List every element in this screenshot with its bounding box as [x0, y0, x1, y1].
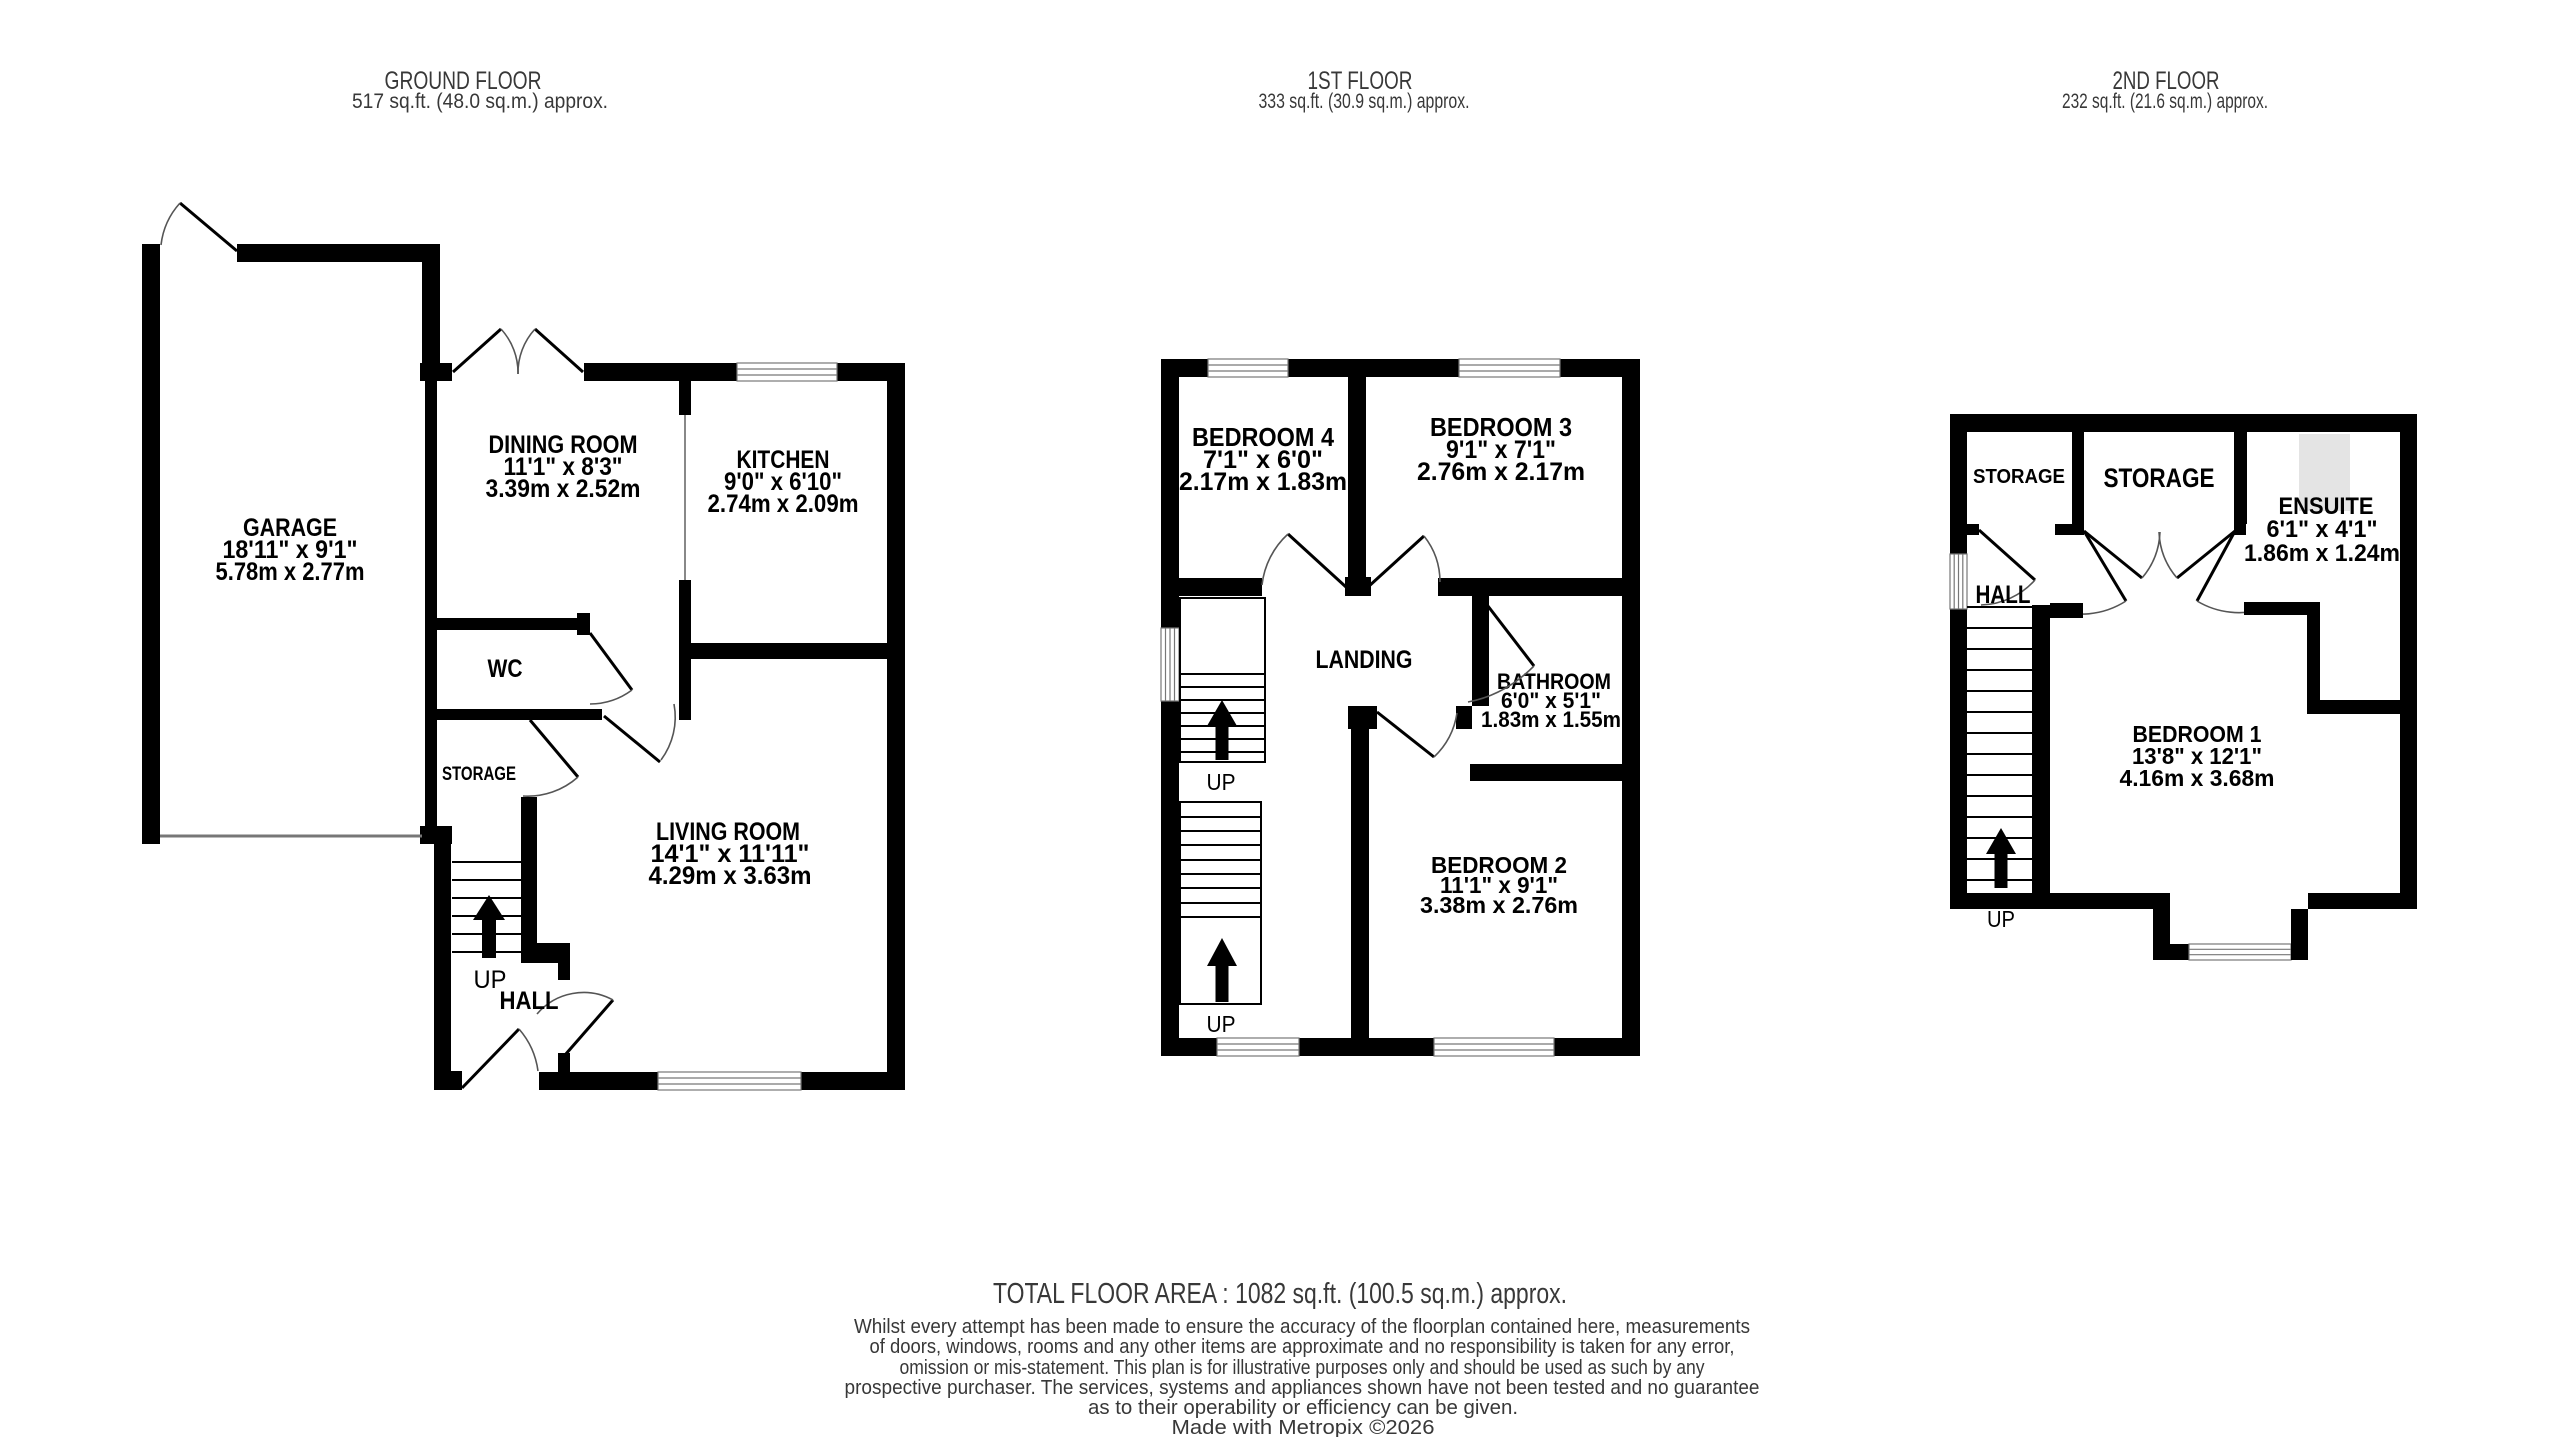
svg-text:3.39m x 2.52m: 3.39m x 2.52m [486, 475, 641, 503]
svg-text:STORAGE: STORAGE [442, 764, 516, 785]
svg-text:Made with Metropix ©2026: Made with Metropix ©2026 [1172, 1417, 1435, 1437]
svg-text:6'1" x 4'1": 6'1" x 4'1" [2267, 516, 2378, 543]
svg-text:STORAGE: STORAGE [2104, 463, 2215, 493]
svg-text:omission or mis-statement. Thi: omission or mis-statement. This plan is … [900, 1357, 1705, 1379]
svg-text:LANDING: LANDING [1316, 646, 1413, 674]
svg-text:232 sq.ft. (21.6 sq.m.) approx: 232 sq.ft. (21.6 sq.m.) approx. [2062, 90, 2268, 113]
svg-text:of doors, windows, rooms and a: of doors, windows, rooms and any other i… [870, 1336, 1735, 1358]
svg-text:as to their operability or eff: as to their operability or efficiency ca… [1088, 1397, 1518, 1419]
svg-text:WC: WC [488, 655, 523, 683]
svg-text:1.83m x 1.55m: 1.83m x 1.55m [1481, 707, 1621, 732]
svg-text:2.74m x 2.09m: 2.74m x 2.09m [708, 490, 859, 518]
svg-text:UP: UP [474, 966, 507, 994]
svg-text:2.76m x 2.17m: 2.76m x 2.17m [1417, 458, 1585, 486]
svg-text:4.29m x 3.63m: 4.29m x 3.63m [649, 862, 812, 890]
svg-text:UP: UP [1207, 769, 1236, 795]
svg-text:prospective purchaser. The ser: prospective purchaser. The services, sys… [845, 1377, 1760, 1399]
svg-text:517 sq.ft. (48.0 sq.m.) approx: 517 sq.ft. (48.0 sq.m.) approx. [352, 90, 608, 113]
svg-text:5.78m x 2.77m: 5.78m x 2.77m [216, 558, 365, 586]
svg-text:Whilst every attempt has been: Whilst every attempt has been made to en… [854, 1316, 1750, 1338]
svg-text:333 sq.ft. (30.9 sq.m.) approx: 333 sq.ft. (30.9 sq.m.) approx. [1259, 90, 1470, 113]
svg-text:4.16m x 3.68m: 4.16m x 3.68m [2120, 765, 2275, 791]
svg-text:1.86m x 1.24m: 1.86m x 1.24m [2244, 540, 2400, 567]
svg-text:TOTAL FLOOR AREA : 1082 sq.ft.: TOTAL FLOOR AREA : 1082 sq.ft. (100.5 sq… [993, 1278, 1567, 1310]
svg-text:3.38m x 2.76m: 3.38m x 2.76m [1420, 892, 1578, 918]
svg-text:HALL: HALL [500, 987, 559, 1015]
svg-text:STORAGE: STORAGE [1973, 466, 2065, 488]
svg-text:2.17m x 1.83m: 2.17m x 1.83m [1179, 468, 1347, 496]
svg-text:UP: UP [1207, 1011, 1236, 1037]
svg-text:HALL: HALL [1976, 581, 2031, 609]
svg-text:UP: UP [1987, 906, 2015, 932]
